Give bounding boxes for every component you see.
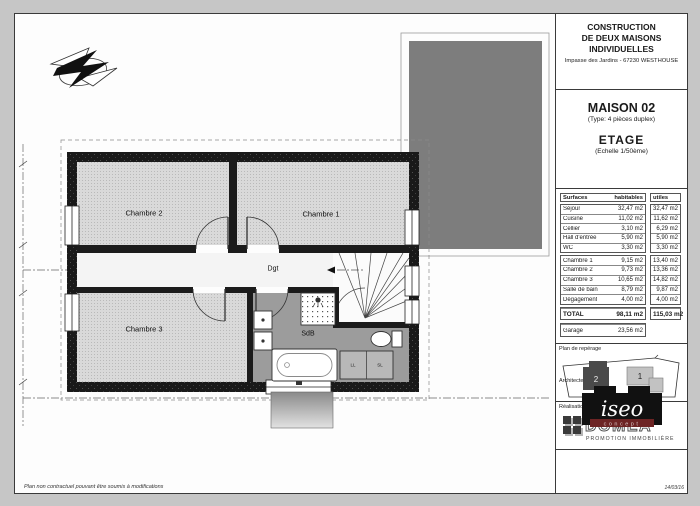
table-cell-utile: 13,40 m2 [653, 258, 678, 264]
table-row: Chambre 29,73 m2 [561, 265, 645, 275]
total-row: TOTAL 98,11 m2 [561, 308, 645, 320]
section-label-architecte: Architecte [556, 376, 687, 384]
room-label-sdb: SdB [301, 331, 314, 338]
toilet [371, 332, 391, 347]
col-header-utiles: utiles [653, 195, 668, 201]
floor-plan-drawing [15, 14, 556, 492]
table-cell-habitable: 4,00 m2 [621, 297, 643, 303]
room-label-chambre3: Chambre 3 [125, 325, 162, 334]
surfaces-section: Surfaces habitables Séjour32,47 m2Cuisin… [556, 189, 687, 344]
garage-row: Garage 23,56 m2 [561, 324, 645, 336]
surfaces-table: Surfaces habitables Séjour32,47 m2Cuisin… [560, 193, 685, 339]
section-label-reperage: Plan de repérage [556, 344, 687, 352]
project-address: Impasse des Jardins - 67230 WESTHOUSE [556, 58, 687, 64]
room-label-chambre1: Chambre 1 [302, 210, 339, 219]
architect-section: Architecte iseo concept 14/03/16 [556, 376, 687, 493]
iseo-tagline: concept [603, 422, 640, 428]
table-cell-label: Dégagement [563, 297, 597, 303]
table-cell-habitable: 3,30 m2 [621, 245, 643, 251]
table-cell-label: Séjour [563, 206, 580, 212]
table-cell-label: Salle de bain [563, 287, 598, 293]
scanned-plan-page: { "page": { "footer_note": "Plan non con… [0, 0, 700, 506]
project-header: CONSTRUCTION DE DEUX MAISONS INDIVIDUELL… [556, 22, 687, 90]
table-cell-habitable: 9,73 m2 [621, 267, 643, 273]
table-row: 13,40 m2 [651, 256, 680, 265]
table-cell-habitable: 32,47 m2 [618, 206, 643, 212]
table-cell-label: Chambre 3 [563, 277, 593, 283]
table-row: 5,90 m2 [651, 233, 680, 243]
header-line2: DE DEUX MAISONS [556, 33, 687, 44]
table-cell-utile: 13,36 m2 [653, 267, 678, 273]
room-label-chambre2: Chambre 2 [125, 209, 162, 218]
table-row: Cellier3,10 m2 [561, 223, 645, 233]
table-row: 9,87 m2 [651, 285, 680, 295]
appliance-label-ll: LL [350, 363, 355, 368]
drawing-sheet: Chambre 2 Chambre 1 Chambre 3 Dgt SdB LL… [14, 13, 688, 494]
table-row: WC3,30 m2 [561, 243, 645, 253]
table-cell-utile: 5,90 m2 [656, 235, 678, 241]
table-cell-utile: 14,82 m2 [653, 277, 678, 283]
room-floors [77, 162, 409, 382]
room-label-dgt: Dgt [268, 266, 279, 273]
table-row: Séjour32,47 m2 [561, 205, 645, 214]
col-header-surfaces: Surfaces [563, 195, 588, 201]
col-header-habitables: habitables [614, 195, 643, 201]
iseo-concept-logo: iseo concept [576, 386, 668, 432]
table-cell-utile: 6,29 m2 [656, 226, 678, 232]
table-row: 4,00 m2 [651, 294, 680, 304]
title-block: CONSTRUCTION DE DEUX MAISONS INDIVIDUELL… [555, 14, 687, 493]
table-cell-label: Hall d'entrée [563, 235, 597, 241]
table-cell-utile: 9,87 m2 [656, 287, 678, 293]
table-cell-label: Chambre 1 [563, 258, 593, 264]
table-row: 14,82 m2 [651, 275, 680, 285]
sheet-identification: MAISON 02 (Type: 4 pièces duplex) ETAGE … [556, 101, 687, 189]
table-row: Chambre 19,15 m2 [561, 256, 645, 265]
table-cell-label: WC [563, 245, 573, 251]
header-line1: CONSTRUCTION [556, 22, 687, 33]
header-line3: INDIVIDUELLES [556, 44, 687, 55]
table-row: Cuisine11,02 m2 [561, 214, 645, 224]
total-utile-row: 115,03 m2 [651, 308, 680, 320]
table-cell-label: Cuisine [563, 216, 583, 222]
house-type: (Type: 4 pièces duplex) [556, 116, 687, 123]
table-row: 11,62 m2 [651, 214, 680, 224]
table-row: Dégagement4,00 m2 [561, 294, 645, 304]
table-row: 6,29 m2 [651, 223, 680, 233]
table-cell-utile: 3,30 m2 [656, 245, 678, 251]
table-row: Chambre 310,65 m2 [561, 275, 645, 285]
table-cell-utile: 4,00 m2 [656, 297, 678, 303]
table-cell-habitable: 10,65 m2 [618, 277, 643, 283]
appliance-label-sl: SL [377, 363, 383, 368]
drawing-scale: (Echelle 1/50ème) [556, 148, 687, 155]
adjoining-roof [401, 33, 549, 256]
table-cell-habitable: 9,15 m2 [621, 258, 643, 264]
table-cell-habitable: 5,90 m2 [621, 235, 643, 241]
table-row: Hall d'entrée5,90 m2 [561, 233, 645, 243]
balcony [271, 392, 333, 428]
table-cell-utile: 11,62 m2 [653, 216, 678, 222]
table-cell-label: Chambre 2 [563, 267, 593, 273]
floor-level: ETAGE [556, 133, 687, 147]
table-cell-habitable: 11,02 m2 [618, 216, 643, 222]
north-arrow-icon [51, 48, 117, 90]
table-cell-utile: 32,47 m2 [653, 206, 678, 212]
table-row: 3,30 m2 [651, 243, 680, 253]
table-cell-label: Cellier [563, 226, 580, 232]
footer-disclaimer: Plan non contractuel pouvant être soumis… [24, 484, 163, 490]
table-cell-habitable: 8,79 m2 [621, 287, 643, 293]
table-row: Salle de bain8,79 m2 [561, 285, 645, 295]
drawing-date: 14/03/16 [665, 485, 684, 491]
table-row: 13,36 m2 [651, 265, 680, 275]
iseo-wordmark: iseo [600, 397, 643, 421]
table-cell-habitable: 3,10 m2 [621, 226, 643, 232]
house-number: MAISON 02 [556, 101, 687, 115]
table-row: 32,47 m2 [651, 205, 680, 214]
